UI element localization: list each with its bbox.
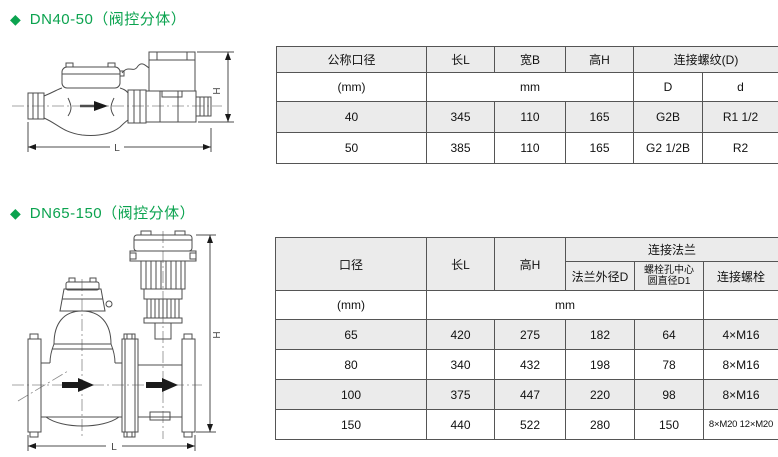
cell: 220 — [566, 380, 635, 410]
cell: 165 — [566, 133, 634, 164]
cell: 80 — [276, 350, 427, 380]
sub-header-d: d — [703, 73, 778, 102]
drawing-dn40-50-meter: H L — [10, 40, 245, 168]
cell: 100 — [276, 380, 427, 410]
flow-direction-arrow — [80, 101, 108, 111]
unit-cell: (mm) — [277, 73, 427, 102]
cell: 440 — [427, 410, 495, 440]
unit-cell: mm — [427, 73, 634, 102]
table-row: 80 340 432 198 78 8×M16 — [276, 350, 778, 380]
cell: 182 — [566, 320, 635, 350]
col-header-height: 高H — [566, 47, 634, 73]
sub-header-flange-od: 法兰外径D — [566, 262, 635, 291]
unit-cell-empty — [704, 291, 778, 320]
dim-label-l: L — [114, 143, 120, 154]
table-unit-row: (mm) mm D d — [277, 73, 778, 102]
section1-heading: ◆ DN40-50（阀控分体） — [10, 8, 186, 29]
dimension-lines: H L — [28, 52, 234, 154]
col-header-flange: 连接法兰 — [566, 238, 778, 262]
col-header-diameter: 公称口径 — [277, 47, 427, 73]
table-row: 40 345 110 165 G2B R1 1/2 — [277, 102, 778, 133]
table-row: 65 420 275 182 64 4×M16 — [276, 320, 778, 350]
dim-label-h: H — [212, 331, 223, 338]
unit-cell: mm — [427, 291, 704, 320]
table-row: 50 385 110 165 G2 1/2B R2 — [277, 133, 778, 164]
section2-heading: ◆ DN65-150（阀控分体） — [10, 202, 195, 223]
cell: 110 — [495, 133, 566, 164]
dim-label-h: H — [212, 87, 223, 94]
dim-label-l: L — [111, 442, 117, 453]
cell: 522 — [495, 410, 566, 440]
cell: 50 — [277, 133, 427, 164]
cell: 385 — [427, 133, 495, 164]
section1-title: DN40-50（阀控分体） — [30, 8, 187, 29]
cell: 65 — [276, 320, 427, 350]
cell: 447 — [495, 380, 566, 410]
cell: 64 — [635, 320, 704, 350]
cell: 198 — [566, 350, 635, 380]
table-row: 100 375 447 220 98 8×M16 — [276, 380, 778, 410]
cell: R2 — [703, 133, 778, 164]
cell: G2B — [634, 102, 703, 133]
cell: 280 — [566, 410, 635, 440]
drawing-dn65-150-meter: H L — [10, 227, 235, 456]
cell: 375 — [427, 380, 495, 410]
section2-title: DN65-150（阀控分体） — [30, 202, 195, 223]
sub-header-bolt-circle: 螺栓孔中心 圆直径D1 — [635, 262, 704, 291]
table-header-row: 公称口径 长L 宽B 高H 连接螺纹(D) — [277, 47, 778, 73]
cell: 110 — [495, 102, 566, 133]
cell: 340 — [427, 350, 495, 380]
col-header-width: 宽B — [495, 47, 566, 73]
meter-outline — [28, 231, 196, 437]
cell: 275 — [495, 320, 566, 350]
col-header-diameter: 口径 — [276, 238, 427, 291]
cell: 420 — [427, 320, 495, 350]
cell: G2 1/2B — [634, 133, 703, 164]
table-dn40-50-specs: 公称口径 长L 宽B 高H 连接螺纹(D) (mm) mm D d 40 345… — [276, 46, 778, 164]
table-row: 150 440 522 280 150 8×M20 12×M20 — [276, 410, 778, 440]
cell: 150 — [276, 410, 427, 440]
sub-header-bolt-circle-line1: 螺栓孔中心 — [637, 265, 701, 277]
col-header-height: 高H — [495, 238, 566, 291]
col-header-length: 长L — [427, 47, 495, 73]
table-header-row: 口径 长L 高H 连接法兰 — [276, 238, 778, 262]
cell: 98 — [635, 380, 704, 410]
unit-cell: (mm) — [276, 291, 427, 320]
col-header-thread: 连接螺纹(D) — [634, 47, 778, 73]
cell: 78 — [635, 350, 704, 380]
meter-outline — [12, 52, 222, 135]
sub-header-bolt: 连接螺栓 — [704, 262, 778, 291]
cell: 432 — [495, 350, 566, 380]
table-dn65-150-specs: 口径 长L 高H 连接法兰 法兰外径D 螺栓孔中心 圆直径D1 连接螺栓 (mm… — [275, 237, 778, 440]
cell: R1 1/2 — [703, 102, 778, 133]
cell: 150 — [635, 410, 704, 440]
sub-header-bolt-circle-line2: 圆直径D1 — [637, 276, 701, 288]
cell: 8×M20 12×M20 — [704, 410, 778, 440]
cell: 345 — [427, 102, 495, 133]
sub-header-D: D — [634, 73, 703, 102]
diamond-bullet-icon: ◆ — [10, 12, 21, 26]
table-unit-row: (mm) mm — [276, 291, 778, 320]
cell: 4×M16 — [704, 320, 778, 350]
cell: 8×M16 — [704, 350, 778, 380]
cell: 8×M16 — [704, 380, 778, 410]
cell: 40 — [277, 102, 427, 133]
cell: 165 — [566, 102, 634, 133]
diamond-bullet-icon: ◆ — [10, 206, 21, 220]
col-header-length: 长L — [427, 238, 495, 291]
